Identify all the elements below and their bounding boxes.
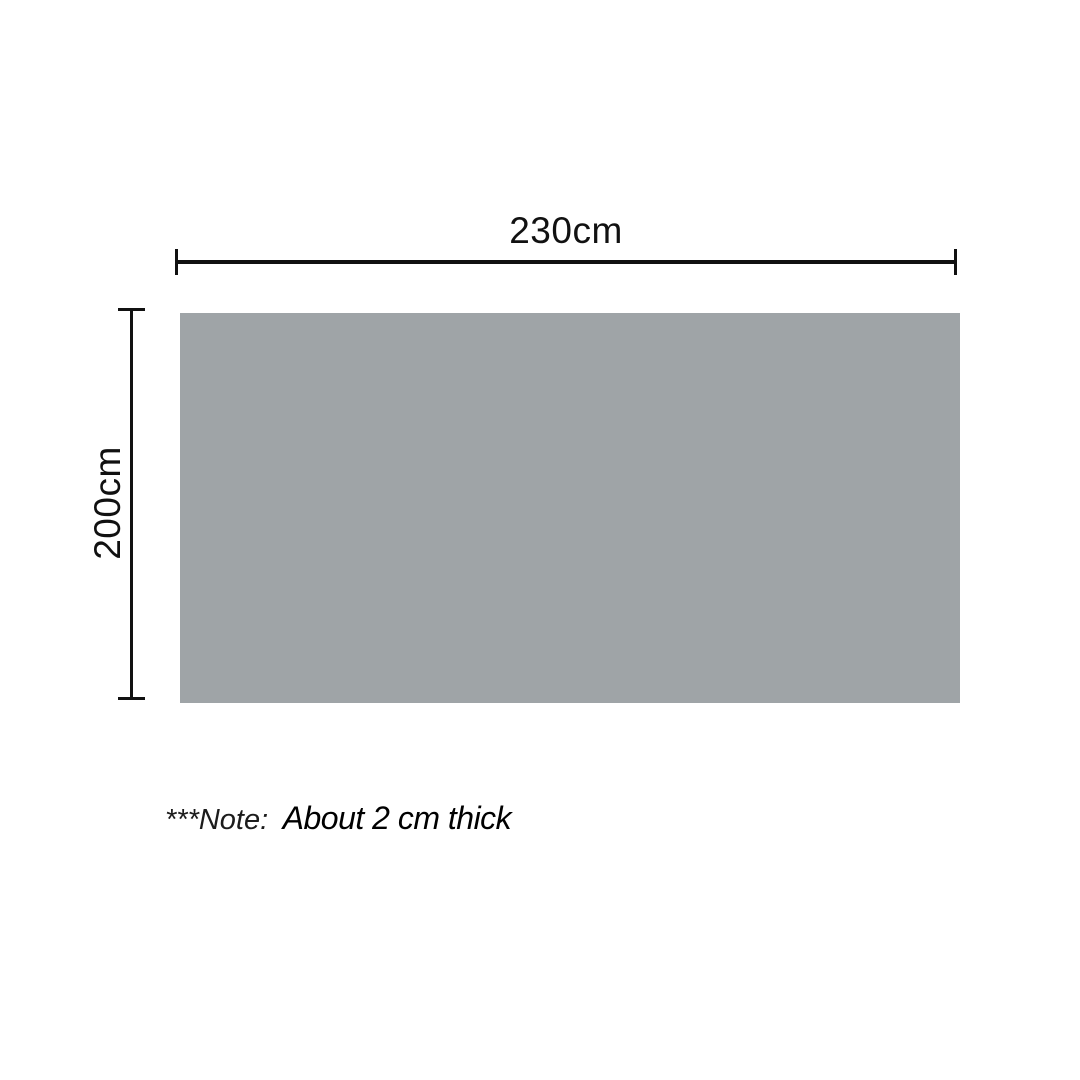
product-rectangle: [180, 313, 960, 703]
thickness-note: ***Note: About 2 cm thick: [165, 800, 511, 837]
height-dimension-tick-bottom: [118, 697, 145, 700]
width-dimension-tick-right: [954, 249, 957, 275]
height-dimension-tick-top: [118, 308, 145, 311]
width-dimension-line: [175, 260, 957, 264]
thickness-note-text: About 2 cm thick: [283, 800, 512, 836]
width-dimension-tick-left: [175, 249, 178, 275]
width-dimension-label: 230cm: [175, 210, 957, 252]
dimension-diagram-canvas: 230cm 200cm ***Note: About 2 cm thick: [0, 0, 1080, 1080]
height-dimension-label: 200cm: [87, 446, 129, 560]
thickness-note-prefix: ***Note:: [165, 804, 268, 836]
height-dimension-line: [130, 308, 133, 700]
